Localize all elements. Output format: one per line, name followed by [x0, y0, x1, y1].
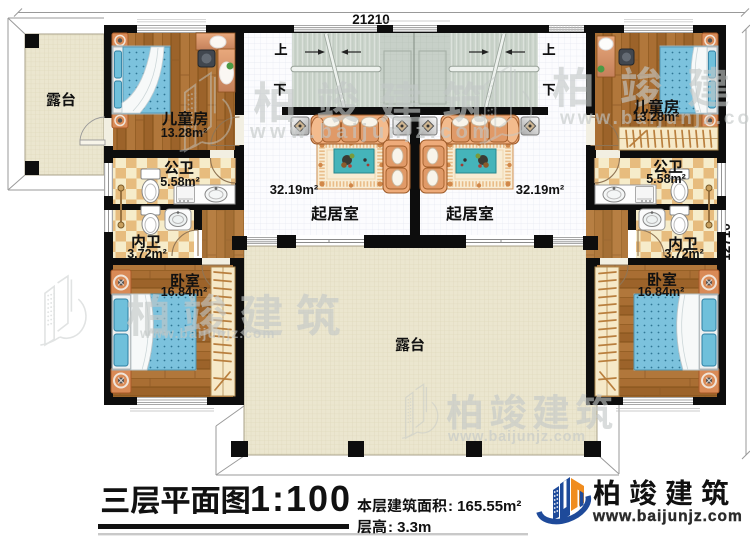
svg-text:www.baijunjz.com: www.baijunjz.com: [139, 326, 276, 341]
svg-text:www.baijunjz.com: www.baijunjz.com: [592, 508, 743, 525]
svg-text:: 3.3m: : 3.3m: [388, 519, 431, 536]
svg-text:www.baijunjz.com: www.baijunjz.com: [249, 121, 495, 143]
svg-text:21210: 21210: [352, 12, 390, 27]
svg-text:5.58m²: 5.58m²: [646, 172, 686, 186]
svg-text:32.19m²: 32.19m²: [270, 182, 319, 197]
svg-text:16.84m²: 16.84m²: [161, 285, 208, 299]
svg-text:3.72m²: 3.72m²: [664, 247, 704, 261]
svg-text:3.72m²: 3.72m²: [127, 247, 167, 261]
svg-text:13.28m²: 13.28m²: [633, 110, 680, 124]
svg-text:16.84m²: 16.84m²: [638, 285, 685, 299]
svg-text:13.28m²: 13.28m²: [161, 126, 208, 140]
svg-text:1:100: 1:100: [250, 478, 352, 519]
svg-text:5.58m²: 5.58m²: [160, 175, 200, 189]
svg-text:www.baijunjz.com: www.baijunjz.com: [447, 429, 586, 445]
svg-text:: 165.55m²: : 165.55m²: [448, 498, 521, 515]
svg-text:32.19m²: 32.19m²: [516, 182, 565, 197]
